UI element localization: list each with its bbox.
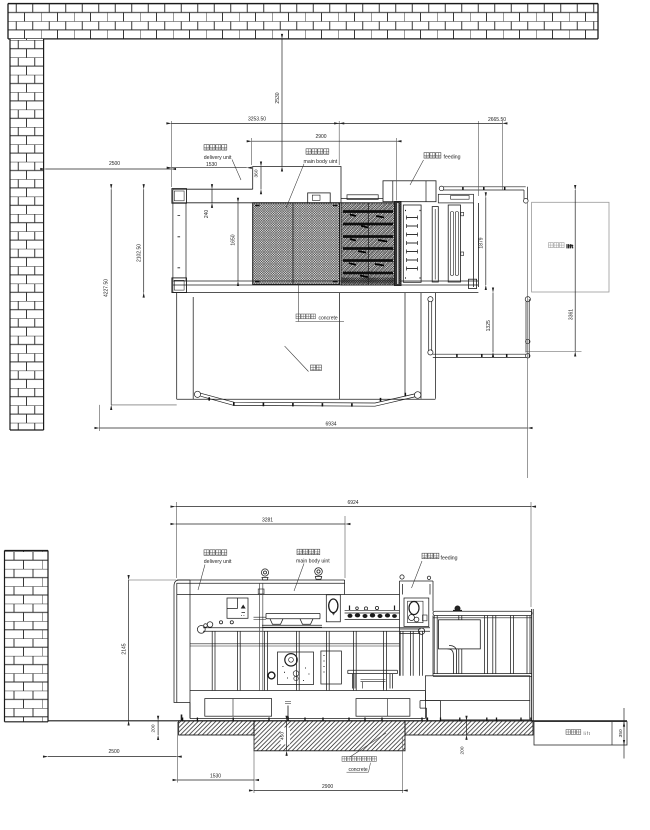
svg-text:2665.50: 2665.50 [488,117,506,123]
svg-text:200: 200 [151,724,157,732]
svg-text:3253.50: 3253.50 [248,116,266,122]
svg-text:2500: 2500 [109,161,120,167]
svg-text:240: 240 [204,210,210,219]
svg-text:lift: lift [567,244,574,249]
svg-text:6934: 6934 [325,421,336,427]
svg-text:1650: 1650 [231,234,237,245]
svg-text:delivery unit: delivery unit [204,559,232,565]
svg-text:2530: 2530 [275,92,281,103]
svg-text:350: 350 [618,729,624,737]
svg-text:concrete: concrete [319,315,338,321]
svg-text:feeding: feeding [441,555,458,561]
svg-text:delivery unit: delivery unit [204,155,232,161]
svg-text:2500: 2500 [108,749,119,755]
svg-text:lift: lift [584,731,591,736]
svg-text:2145: 2145 [122,643,128,654]
svg-text:1530: 1530 [206,162,217,168]
svg-text:2900: 2900 [322,784,333,790]
svg-text:4227.50: 4227.50 [104,279,110,297]
svg-text:6924: 6924 [347,500,358,506]
svg-text:2900: 2900 [315,134,326,140]
svg-text:main body uint: main body uint [304,159,338,165]
svg-text:360: 360 [253,169,259,177]
svg-text:feeding: feeding [444,155,461,161]
svg-text:main body uint: main body uint [296,559,330,565]
svg-text:concrete: concrete [349,767,368,773]
svg-text:2102.50: 2102.50 [137,244,143,262]
svg-text:1530: 1530 [210,773,221,779]
svg-text:1879: 1879 [478,237,484,248]
svg-text:3361: 3361 [569,309,575,320]
svg-text:1325: 1325 [486,320,492,331]
svg-text:200: 200 [459,746,465,754]
svg-text:450: 450 [279,732,285,740]
svg-text:3281: 3281 [262,518,273,524]
